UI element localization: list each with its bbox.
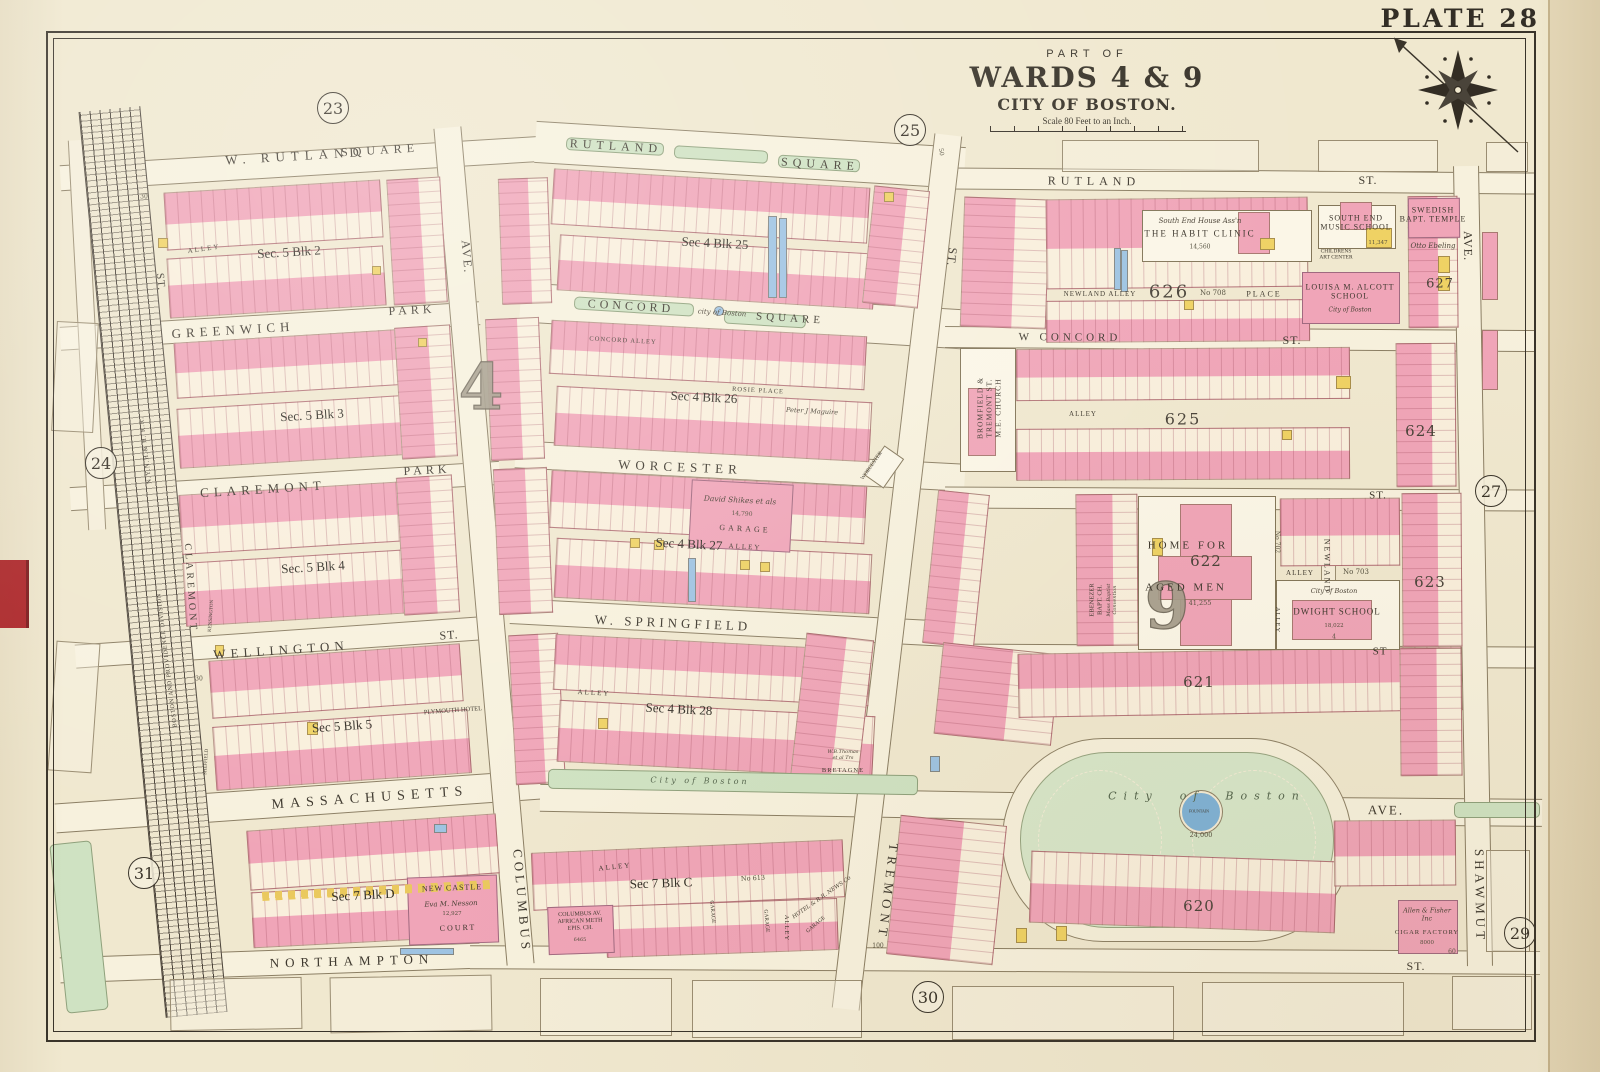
st-label: ST.	[439, 627, 459, 642]
place-label: PLACE	[1246, 289, 1281, 298]
building-detail	[1482, 330, 1498, 390]
city-block	[922, 490, 990, 649]
map-area: W. RUTLANDSQUARERUTLANDSQUARERUTLANDST.G…	[0, 0, 1600, 1072]
adjacent-plate-23: 23	[317, 92, 349, 124]
alley-label: ALLEY	[728, 542, 761, 552]
city-block	[330, 975, 493, 1034]
newland-alley-label: NEWLAND ALLEY	[1064, 290, 1137, 298]
alley-label: ALLEY	[1286, 569, 1314, 577]
mass-baptist-convention-label: Mass Baptist Convention	[1107, 584, 1119, 617]
st-label: ST.	[153, 272, 168, 291]
18-022-label: 18,022	[1324, 623, 1343, 629]
625-label: 625	[1165, 411, 1202, 430]
building-detail	[372, 266, 381, 275]
adjacent-plate-31: 31	[128, 857, 160, 889]
620-label: 620	[1183, 898, 1215, 916]
w-concord-label: W CONCORD	[1019, 331, 1122, 345]
childrens-art-center-label: CHILDRENS ART CENTER	[1319, 249, 1352, 262]
city-block	[396, 474, 460, 615]
city-of-boston-label: City of Boston	[650, 775, 749, 786]
no-613-label: No 613	[741, 875, 765, 884]
building-detail	[779, 218, 787, 298]
building-detail	[1336, 376, 1351, 389]
swedish-bapt-temple-label: SWEDISH BAPT. TEMPLE	[1400, 206, 1467, 225]
building-detail	[884, 192, 894, 202]
41-255-label: 41,255	[1189, 600, 1212, 608]
city-block	[1075, 494, 1138, 647]
building-detail	[598, 718, 608, 729]
st-label: ST	[1373, 646, 1388, 659]
627-label: 627	[1426, 276, 1454, 291]
city-block	[1401, 493, 1462, 647]
city-block	[163, 179, 383, 250]
city-block	[498, 177, 552, 305]
bromfield-tremont-st-m-e-church-label: BROMFIELD & TREMONT ST. M.E. CHURCH	[977, 377, 1004, 439]
11-347-label: 11,347	[1368, 240, 1387, 246]
ave-label: AVE.	[1461, 231, 1476, 261]
no-703-label: No 703	[1343, 568, 1369, 576]
st-label: ST.	[1369, 490, 1387, 503]
building-detail	[930, 756, 940, 772]
city-block	[1029, 851, 1337, 934]
st-label: ST.	[944, 247, 960, 268]
building-detail	[688, 558, 696, 602]
building-detail	[1114, 248, 1121, 290]
6465-label: 6465	[574, 938, 587, 944]
city-block	[1016, 427, 1350, 481]
626-label: 626	[1149, 281, 1189, 302]
50-label: 50	[937, 148, 945, 157]
building-detail	[418, 338, 427, 347]
otto-ebeling-label: Otto Ebeling	[1410, 242, 1455, 250]
city-block	[886, 815, 1007, 965]
building-detail	[740, 560, 750, 570]
adjacent-plate-25: 25	[894, 114, 926, 146]
park-label: PARK	[388, 302, 436, 319]
city-block	[1202, 982, 1404, 1036]
building-detail	[1121, 250, 1128, 292]
park-label: PARK	[403, 462, 451, 479]
4-label: 4	[459, 350, 504, 426]
scale-bar	[990, 126, 1186, 132]
ave-label: AVE.	[1368, 802, 1404, 818]
alley-label: ALLEY	[1273, 607, 1281, 633]
building-detail	[760, 562, 770, 572]
columbus-av-african-meth-epis-ch-label: COLUMBUS AV. AFRICAN METH EPIS. CH.	[557, 911, 603, 934]
623-label: 623	[1414, 574, 1446, 592]
allen-fisher-inc-label: Allen & Fisher Inc	[1403, 907, 1451, 922]
louisa-m-alcott-school-label: LOUISA M. ALCOTT SCHOOL	[1305, 283, 1394, 302]
14-790-label: 14,790	[731, 510, 752, 518]
dwight-school-label: DWIGHT SCHOOL	[1293, 607, 1381, 618]
sec-7-blk-c-label: Sec 7 Blk C	[630, 874, 693, 891]
city-block	[1062, 140, 1259, 172]
atlas-sheet: W. RUTLANDSQUARERUTLANDSQUARERUTLANDST.G…	[0, 0, 1600, 1072]
building-detail	[1260, 238, 1275, 250]
city-of-boston-label: City of Boston	[1108, 791, 1306, 804]
fountain-label: FOUNTAIN	[1189, 810, 1209, 815]
st-label: ST.	[1282, 333, 1301, 347]
624-label: 624	[1405, 423, 1437, 441]
title-city: CITY OF BOSTON.	[960, 95, 1214, 114]
home-for-label: HOME FOR	[1148, 540, 1229, 553]
park-strip	[1454, 802, 1540, 818]
city-block	[170, 977, 303, 1031]
ave-label: AVE.	[458, 239, 475, 274]
sheffield-label: SHEFFIELD	[203, 749, 211, 776]
622-label: 622	[1190, 553, 1222, 571]
city-block	[1334, 819, 1457, 886]
14-560-label: 14,560	[1190, 243, 1211, 250]
ebenezer-bapt-ch-label: EBENEZER BAPT. CH.	[1088, 583, 1103, 616]
city-block	[386, 176, 448, 305]
city-block	[48, 641, 101, 774]
the-habit-clinic-label: THE HABIT CLINIC	[1144, 229, 1255, 240]
city-block	[176, 395, 403, 469]
adjacent-plate-29: 29	[1504, 917, 1536, 949]
title-wards: WARDS 4 & 9	[960, 61, 1214, 94]
w-b-thomas-et-al-trs-label: W.B.Thomas et al Trs	[828, 750, 859, 762]
building-detail	[1482, 232, 1498, 300]
8000-label: 8000	[1420, 940, 1434, 946]
no-702-label: No 702	[1273, 531, 1280, 553]
621-label: 621	[1183, 674, 1215, 692]
south-end-house-ass-n-label: South End House Ass'n	[1159, 217, 1242, 225]
city-block	[960, 197, 1050, 330]
30-label: 30	[195, 675, 203, 682]
building-detail	[1056, 926, 1067, 941]
compass-rose-icon	[1378, 28, 1528, 168]
aged-men-label: AGED MEN	[1145, 582, 1227, 595]
adjacent-plate-27: 27	[1475, 475, 1507, 507]
title-part-of: PART OF	[960, 48, 1214, 60]
building-detail	[1016, 928, 1027, 943]
4-label: 4	[1332, 633, 1336, 640]
page-edge	[1548, 0, 1600, 1072]
city-block	[952, 986, 1174, 1040]
rutland-label: RUTLAND	[1048, 174, 1140, 189]
24-000-label: 24,000	[1190, 832, 1213, 840]
60-label: 60	[1448, 948, 1456, 955]
city-block	[1280, 498, 1400, 567]
alley-label: ALLEY	[782, 915, 790, 941]
city-block	[1017, 646, 1462, 718]
city-block	[1399, 648, 1462, 777]
city-block	[540, 978, 672, 1036]
building-detail	[630, 538, 640, 548]
alley-label: ALLEY	[577, 688, 610, 698]
building-detail	[158, 238, 168, 248]
south-end-music-school-label: SOUTH END MUSIC SCHOOL	[1320, 214, 1391, 233]
building-detail	[1438, 256, 1450, 273]
building-detail	[1282, 430, 1292, 440]
12-927-label: 12,927	[442, 911, 461, 917]
no-708-label: No 708	[1200, 289, 1226, 297]
kensington-label: KENSINGTON	[208, 600, 216, 632]
city-block	[1452, 976, 1532, 1030]
court-label: COURT	[440, 923, 477, 934]
shawmut-label: SHAWMUT	[1472, 849, 1489, 943]
city-block	[1016, 347, 1350, 401]
title-block: PART OF WARDS 4 & 9 CITY OF BOSTON. Scal…	[960, 48, 1214, 126]
city-block	[493, 467, 553, 615]
bretagne-label: BRETAGNE	[822, 767, 864, 775]
sec-7-blk-d-label: Sec 7 Blk D	[331, 886, 395, 905]
city-of-boston-label: City of Boston	[1329, 306, 1372, 313]
city-of-boston-label: City of Boston	[1311, 588, 1358, 596]
st-label: ST.	[1406, 959, 1425, 973]
binding-tab	[0, 560, 29, 628]
100-label: 100	[872, 942, 883, 949]
park-strip	[49, 840, 109, 1013]
city-block	[692, 980, 862, 1038]
30-label: 30	[140, 193, 148, 200]
city-block	[51, 321, 99, 433]
building-detail	[434, 824, 447, 833]
alley-label: ALLEY	[1069, 410, 1097, 418]
newland-label: NEWLAND	[1322, 539, 1331, 593]
adjacent-plate-30: 30	[912, 981, 944, 1013]
title-scale: Scale 80 Feet to an Inch.	[960, 116, 1214, 126]
cigar-factory-label: CIGAR FACTORY	[1395, 929, 1459, 937]
city-block	[1395, 343, 1456, 487]
building-detail	[768, 216, 777, 298]
adjacent-plate-24: 24	[85, 447, 117, 479]
plate-number: PLATE 28	[1360, 4, 1540, 33]
st-label: ST.	[1358, 173, 1377, 187]
